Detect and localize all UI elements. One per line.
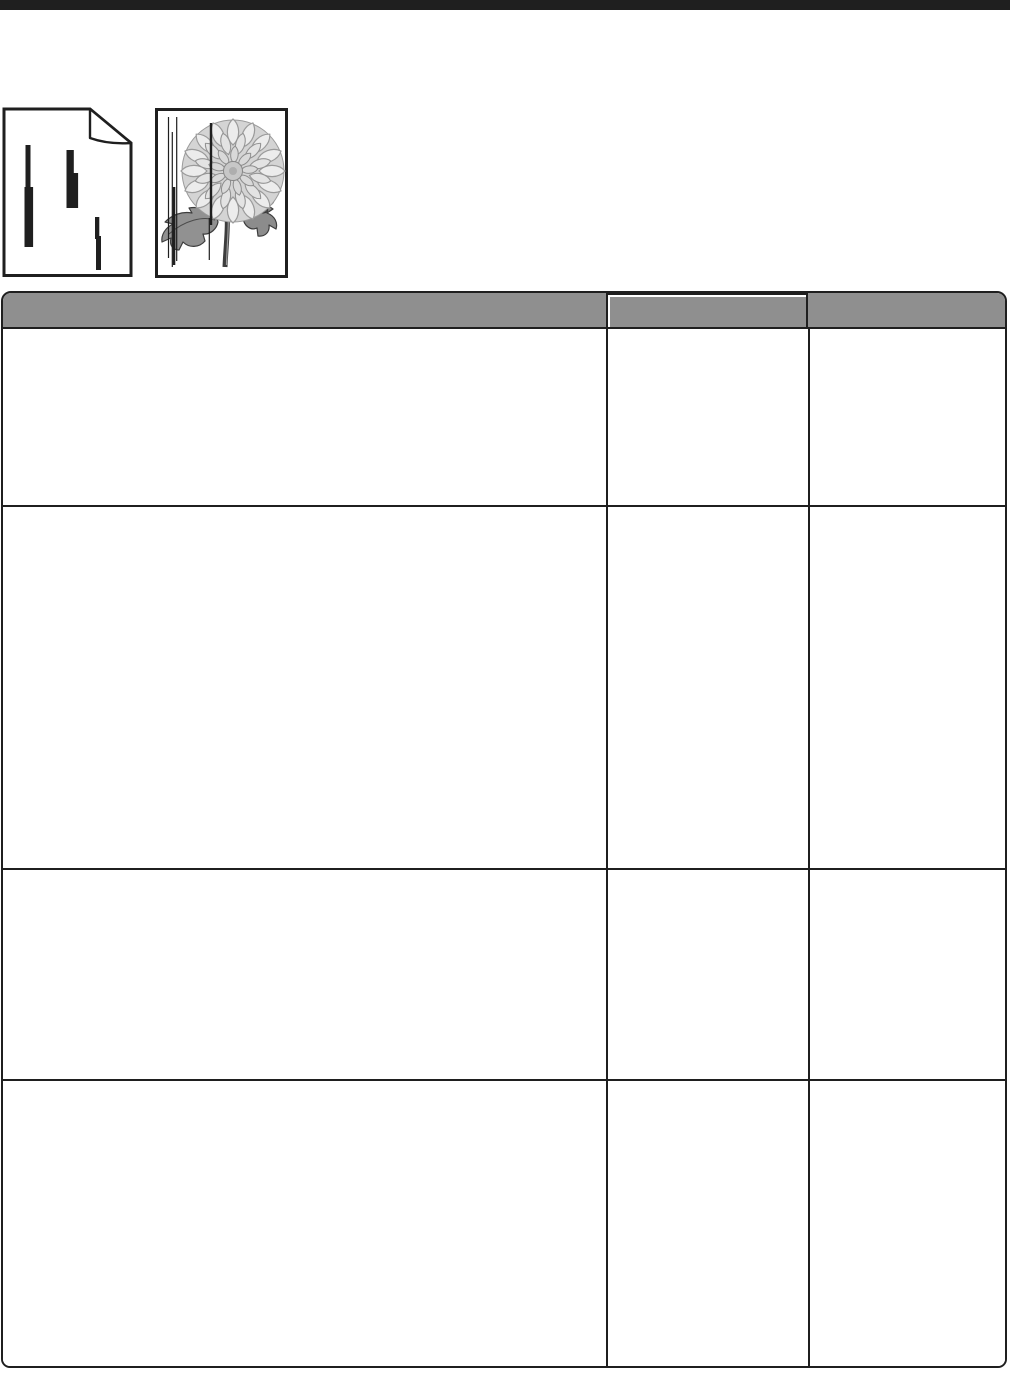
table-cell-r1-c3 [808,329,1005,507]
header-cell-1 [3,293,606,329]
table-cell-r3-c2 [606,870,808,1081]
table-cell-r4-c1 [3,1081,606,1366]
table-cell-r2-c1 [3,507,606,870]
table-cell-r2-c3 [808,507,1005,870]
streaked-page-illustration [2,107,133,278]
table-cell-r3-c3 [808,870,1005,1081]
table-cell-r1-c2 [606,329,808,507]
manual-page [0,0,1010,1374]
table-cell-r2-c2 [606,507,808,870]
streaked-flower-illustration [155,108,288,278]
header-cell-3 [808,293,1005,329]
table-cell-r1-c1 [3,329,606,507]
troubleshooting-table [1,291,1007,1368]
folded-corner-icon [90,109,131,143]
flower-head [181,119,285,223]
top-rule [0,0,1010,10]
table-cell-r4-c2 [606,1081,808,1366]
table-cell-r3-c1 [3,870,606,1081]
table-cell-r4-c3 [808,1081,1005,1366]
header-cell-2 [606,293,808,329]
